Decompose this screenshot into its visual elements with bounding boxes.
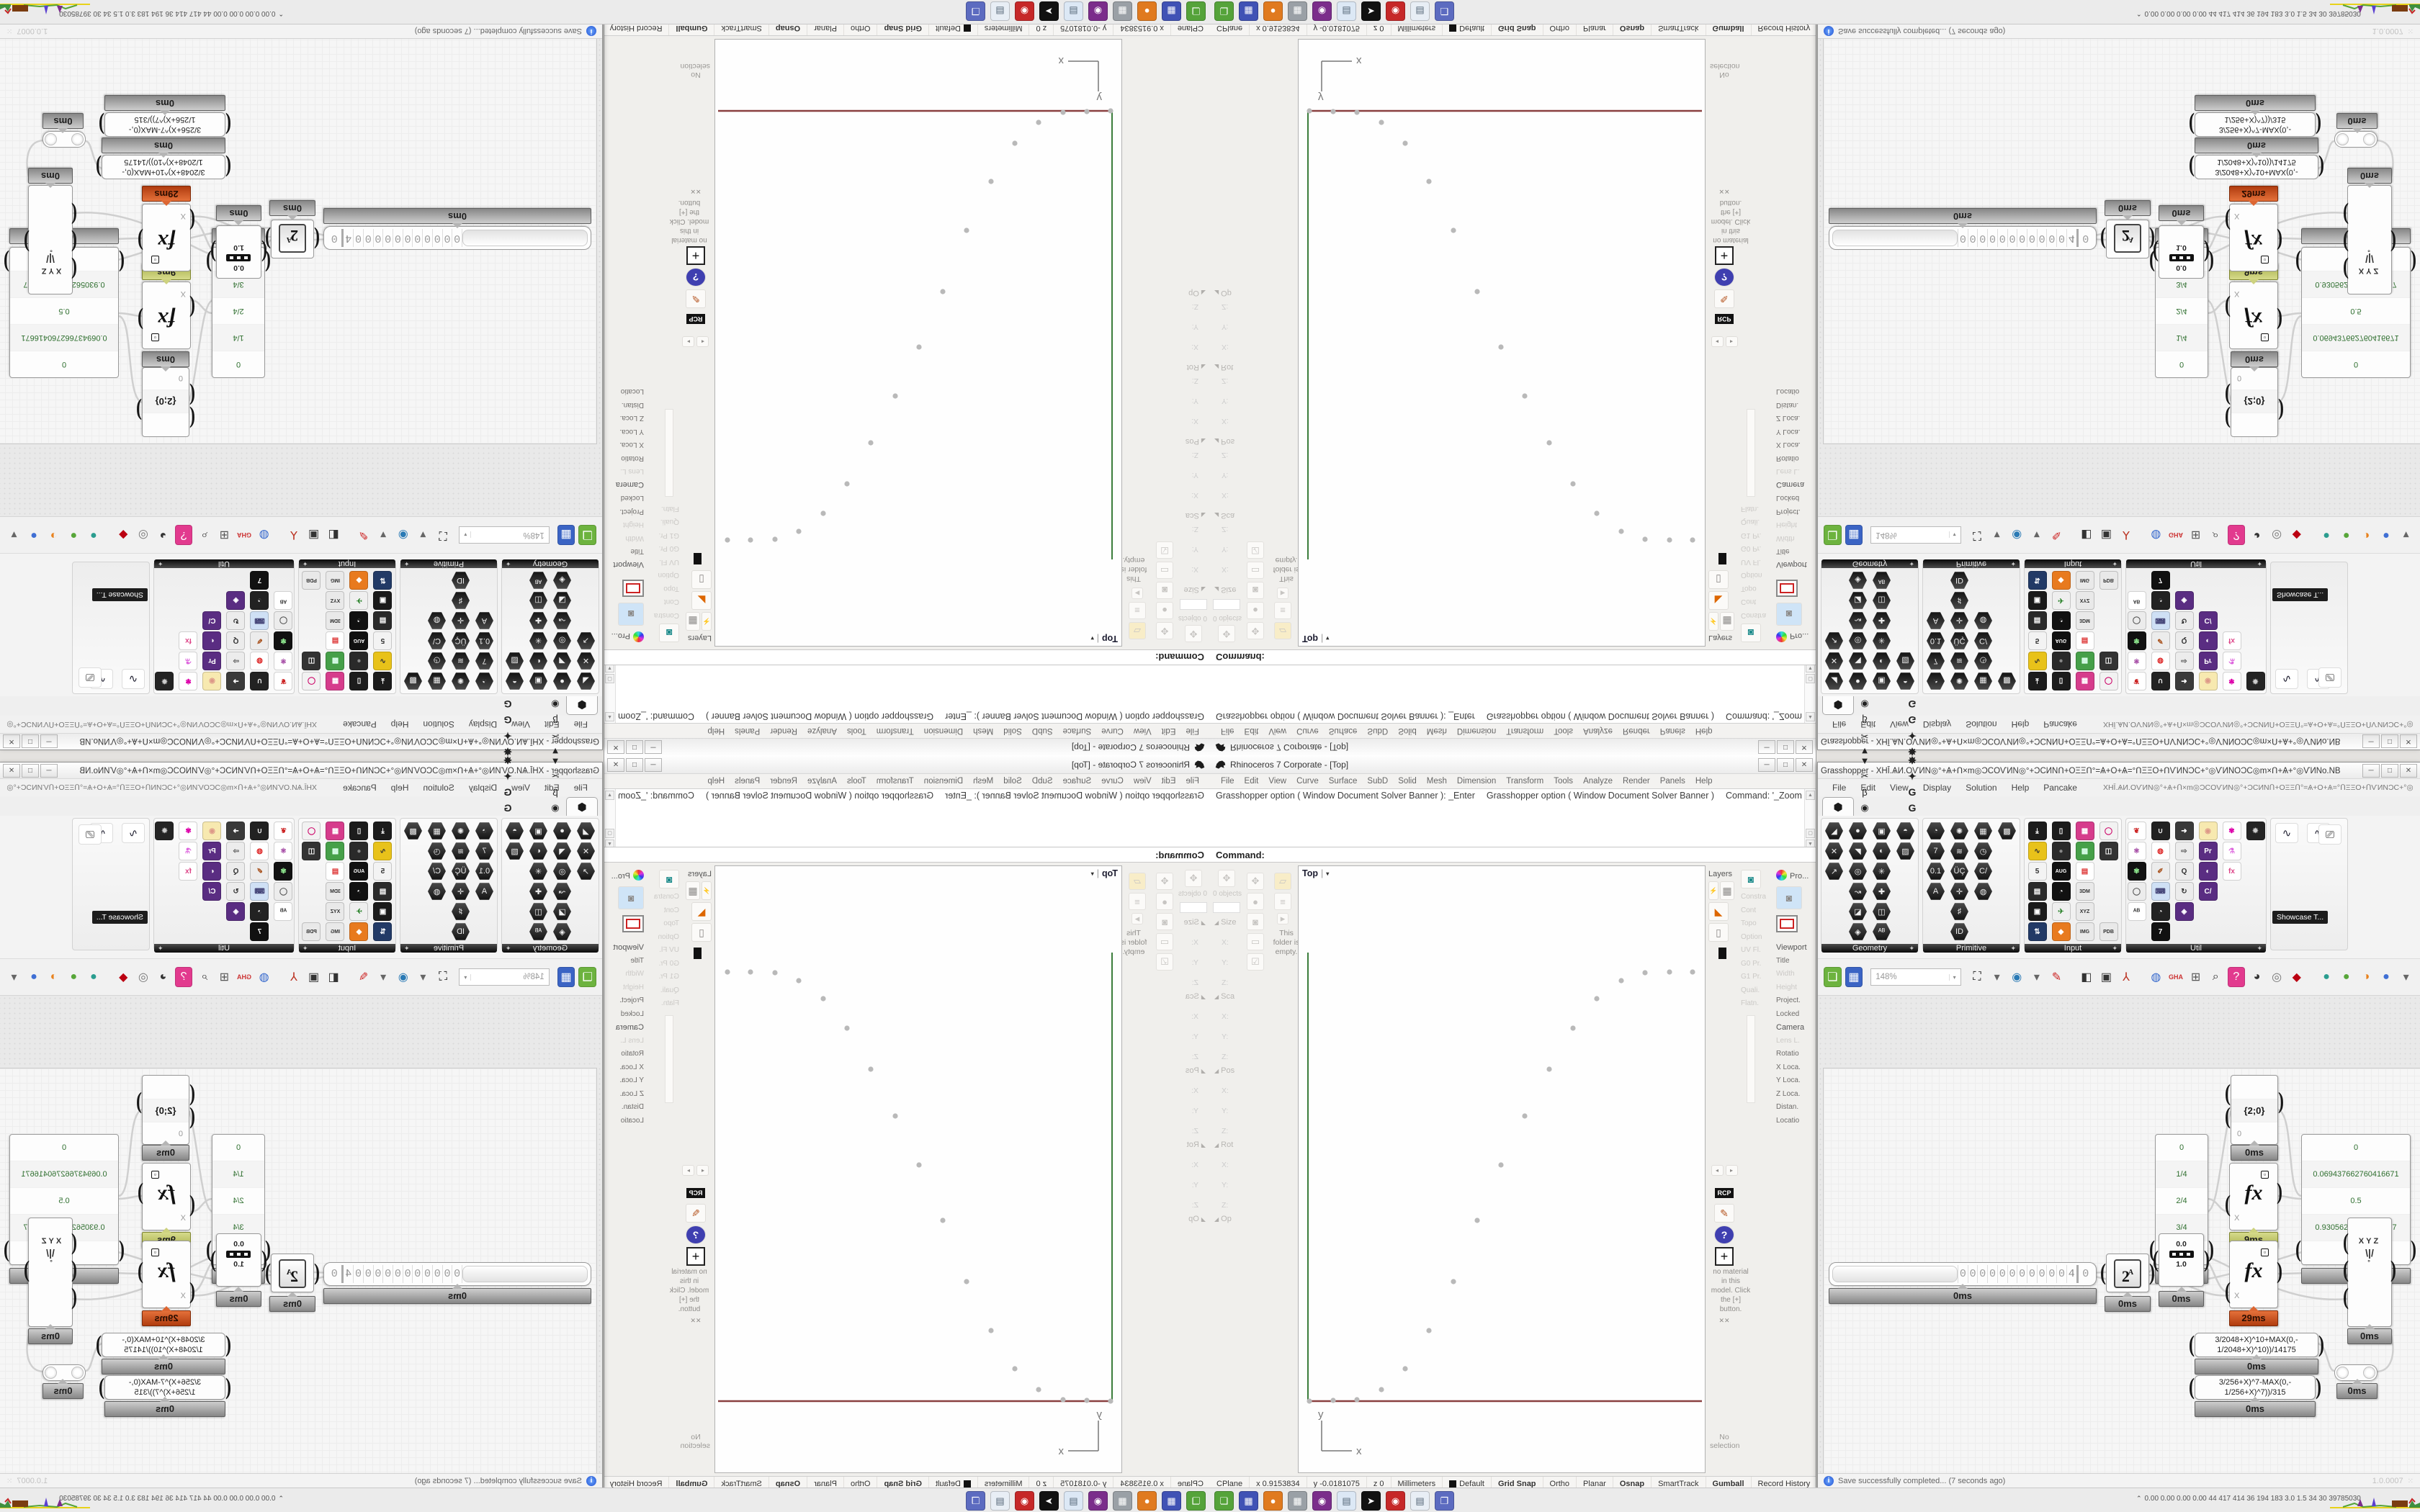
speaker-icon[interactable]: ◧ <box>2078 968 2094 986</box>
gh-category-tab[interactable]: ◉ <box>545 800 565 816</box>
resize-grip-icon[interactable]: ⁙ <box>6 27 12 35</box>
layer-color-swatch[interactable] <box>694 553 702 564</box>
pencil-gear-icon[interactable]: ✎ <box>686 289 706 308</box>
component-icon[interactable]: ✈ <box>2052 902 2071 921</box>
rhino-menu-item[interactable]: Help <box>1690 775 1718 787</box>
slider-grip[interactable] <box>462 1266 588 1282</box>
gh-category-tab[interactable]: β <box>545 712 565 728</box>
component-icon[interactable]: IMG <box>2076 571 2094 590</box>
command-history[interactable]: Grasshopper option ( Window Document Sol… <box>604 788 1210 847</box>
viewport-rect-icon[interactable] <box>1776 580 1798 597</box>
component-icon[interactable]: ▯ <box>350 822 369 840</box>
command-prompt-row[interactable]: Command: <box>604 847 1210 863</box>
component-icon[interactable]: ◈ <box>1849 923 1868 941</box>
projector-screen-icon[interactable]: ⎚ <box>2318 667 2341 688</box>
speaker-icon[interactable]: ◧ <box>2078 526 2094 544</box>
component-icon[interactable]: ᴬᴮ <box>1873 572 1891 590</box>
component-icon[interactable]: ↻ <box>2175 882 2194 901</box>
gh-menu-item[interactable]: File <box>567 781 595 794</box>
sketch-pen-icon[interactable]: ✎ <box>355 968 372 986</box>
component-icon[interactable]: ᴬᴮ <box>529 572 548 590</box>
left-tool-icon[interactable]: ☑ <box>1247 541 1264 559</box>
pencil-gear-icon[interactable]: ✎ <box>1714 1204 1734 1223</box>
expression-text-panel-1[interactable]: 3/2048+X)^10+MAX(0,-1/2048+X)^10))/14175… <box>102 155 225 179</box>
component-icon[interactable]: ▦ <box>1974 822 1993 840</box>
component-icon[interactable]: ⌨ <box>2151 882 2170 901</box>
box-icon[interactable]: ▣ <box>2098 968 2115 986</box>
component-icon[interactable]: ▩ <box>404 672 423 690</box>
prev-icon[interactable]: ◂ <box>1711 1165 1724 1176</box>
taskbar-app-icon[interactable]: ▤ <box>1337 1491 1356 1511</box>
command-scrollbar[interactable]: ▲▢▼ <box>604 789 616 847</box>
taskbar-app-icon[interactable]: ▤ <box>1410 1491 1430 1511</box>
slider-digit[interactable]: 0 <box>443 229 453 247</box>
taskbar-app-icon[interactable]: ◉ <box>1015 1491 1034 1511</box>
component-icon[interactable]: ◯ <box>302 822 321 840</box>
component-icon[interactable]: ♯ <box>452 592 470 610</box>
component-icon[interactable]: ▣ <box>374 591 393 610</box>
boxedit-section-header[interactable]: ◢Size <box>1214 918 1243 927</box>
component-icon[interactable]: ◐ <box>1873 652 1891 670</box>
layer-color-swatch[interactable] <box>1718 948 1726 959</box>
rings-icon[interactable]: ◎ <box>135 968 152 986</box>
component-icon[interactable]: ◓ <box>1896 822 1915 840</box>
component-icon[interactable]: ✳ <box>1873 863 1891 881</box>
tab-params[interactable]: ⬢ <box>566 696 598 715</box>
command-prompt-row[interactable]: Command: <box>1210 649 1816 665</box>
component-icon[interactable]: ◍ <box>2151 652 2170 670</box>
boxedit-input[interactable] <box>1180 599 1207 610</box>
component-icon[interactable]: ≋ <box>452 842 470 860</box>
component-icon[interactable]: ✾ <box>179 822 198 840</box>
component-icon[interactable]: ↝ <box>1849 612 1868 630</box>
taskbar-app-icon[interactable]: ❐ <box>1435 1491 1454 1511</box>
rhino-menu-item[interactable]: SubD <box>1027 725 1058 737</box>
component-icon[interactable]: ✛ <box>1950 612 1969 630</box>
taskbar-app-icon[interactable]: ● <box>1137 1 1157 21</box>
gumball-icon[interactable]: ✥ <box>1218 870 1235 887</box>
next-icon[interactable]: ▸ <box>1726 1165 1738 1176</box>
rhino-menu-item[interactable]: Edit <box>1240 725 1264 737</box>
component-icon[interactable]: ◍ <box>251 842 269 860</box>
component-icon[interactable]: ✛ <box>452 883 470 901</box>
rhino-menu-item[interactable]: Solid <box>1393 775 1422 787</box>
remap-component[interactable]: 0.0 1.0 () <box>2159 1233 2204 1287</box>
component-icon[interactable]: ▨ <box>506 652 524 670</box>
gh-category-tab[interactable]: β <box>1855 784 1875 800</box>
taskbar-app-icon[interactable]: ❐ <box>1435 1 1454 21</box>
speaker-icon[interactable]: ◧ <box>326 526 342 544</box>
command-history[interactable]: Grasshopper option ( Window Document Sol… <box>1210 788 1816 847</box>
cookie-icon[interactable]: ◕ <box>2249 526 2265 544</box>
gumball-icon[interactable]: ✥ <box>1185 625 1202 642</box>
component-icon[interactable]: ◎ <box>1849 632 1868 650</box>
component-icon[interactable]: Q <box>2175 862 2194 881</box>
boxedit-section-header[interactable]: ◢Sca <box>1214 992 1243 1001</box>
ribbon-group-label[interactable]: Geometry✦ <box>502 559 599 568</box>
component-icon[interactable]: PDB <box>2099 922 2118 941</box>
component-icon[interactable]: ▯ <box>2052 672 2071 690</box>
component-icon[interactable]: ◯ <box>2128 611 2146 630</box>
maximize-icon[interactable]: □ <box>22 764 39 778</box>
component-icon[interactable]: ✈ <box>2052 591 2071 610</box>
layer-state-icon[interactable]: ⚡ <box>702 612 712 631</box>
component-icon[interactable]: C/ <box>428 863 447 881</box>
gha-icon[interactable]: GHA <box>2168 526 2184 544</box>
component-icon[interactable]: 7 <box>1927 842 1945 860</box>
teal-ball-icon[interactable]: ● <box>86 526 102 544</box>
component-icon[interactable]: ✐ <box>251 631 269 650</box>
rhino-menu-item[interactable]: Edit <box>1157 725 1181 737</box>
component-icon[interactable]: PDB <box>2099 571 2118 590</box>
component-icon[interactable]: ◎ <box>553 632 572 650</box>
slider-digit[interactable]: 0 <box>1968 229 1978 247</box>
component-icon[interactable]: ● <box>2052 652 2071 670</box>
component-icon[interactable]: ↻ <box>2175 611 2194 630</box>
component-icon[interactable]: ◍ <box>2151 842 2170 860</box>
component-icon[interactable]: ↗ <box>1825 863 1844 881</box>
maximize-icon[interactable]: □ <box>626 741 643 755</box>
rhino-menu-item[interactable]: Tools <box>842 775 871 787</box>
component-icon[interactable]: 0.1 <box>1927 632 1945 650</box>
component-icon[interactable]: ▩ <box>326 652 345 670</box>
component-icon[interactable]: ➜ <box>2175 822 2194 840</box>
paper-icon[interactable]: ▯ <box>691 923 712 942</box>
taskbar-app-icon[interactable]: ▤ <box>1064 1491 1083 1511</box>
next-icon[interactable]: ▸ <box>1726 336 1738 347</box>
gh-menu-item[interactable]: Help <box>2004 718 2037 731</box>
folder-icon[interactable]: ▱ <box>1274 873 1291 890</box>
expression-text-panel-2[interactable]: 3/256+X)^7-MAX(0,-1/256+X)^7))/315 () <box>2195 1375 2316 1400</box>
component-icon[interactable]: ∪ <box>251 822 269 840</box>
component-icon[interactable]: ◔ <box>251 591 269 610</box>
component-icon[interactable]: 5 <box>374 862 393 881</box>
folder-icon[interactable]: ▱ <box>1129 873 1146 890</box>
rcp-icon[interactable]: RCP <box>1715 314 1733 324</box>
component-icon[interactable]: ⌨ <box>251 611 269 630</box>
component-icon[interactable]: C/ <box>203 882 222 901</box>
save-icon[interactable]: ▦ <box>1845 967 1863 987</box>
boxedit-section-header[interactable]: ◢Size <box>1177 585 1206 594</box>
component-icon[interactable]: Pr <box>2199 652 2218 670</box>
vertical-slider[interactable] <box>665 1015 673 1103</box>
camera-gear-icon[interactable]: ◙ <box>1741 624 1761 642</box>
component-icon[interactable]: ◔ <box>2052 611 2071 630</box>
component-icon[interactable]: ✚ <box>1873 883 1891 901</box>
close-icon[interactable]: ✕ <box>607 741 624 755</box>
component-icon[interactable]: ✐ <box>2151 631 2170 650</box>
component-icon[interactable]: fx <box>179 631 198 650</box>
prev-icon[interactable]: ◂ <box>697 336 709 347</box>
component-icon[interactable]: 3DM <box>2076 611 2094 630</box>
number-slider[interactable]: 0000000000040 <box>323 226 591 250</box>
component-icon[interactable]: ◈ <box>227 902 246 921</box>
taskbar-app-icon[interactable]: ◉ <box>1312 1491 1332 1511</box>
layer-state-icon[interactable]: ⚡ <box>1708 612 1718 631</box>
rhino-menu-item[interactable]: Panels <box>1655 725 1690 737</box>
gh-plugin-tab[interactable]: ✸ <box>498 756 518 768</box>
preview-eye-icon[interactable]: ◉ <box>395 968 411 986</box>
component-icon[interactable]: ◈ <box>2175 902 2194 921</box>
boxedit-section-header[interactable]: ◢Pos <box>1177 1066 1206 1075</box>
vertical-slider[interactable] <box>665 410 673 498</box>
teal-ball-icon[interactable]: ● <box>2318 968 2335 986</box>
magnifier-icon[interactable]: ⌕ <box>2208 968 2224 986</box>
boxedit-section-header[interactable]: ◢Rot <box>1177 363 1206 372</box>
expression-text-panel-1[interactable]: 3/2048+X)^10+MAX(0,-1/2048+X)^10))/14175… <box>2195 155 2318 179</box>
viewport-label[interactable]: Top|▾ <box>1091 868 1118 878</box>
component-icon[interactable]: ◉ <box>203 672 222 690</box>
component-icon[interactable]: ✛ <box>452 612 470 630</box>
gem-icon[interactable]: ◆ <box>115 968 132 986</box>
component-icon[interactable]: C/ <box>1974 632 1993 650</box>
rhino-menu-item[interactable]: Transform <box>871 775 919 787</box>
vertical-slider[interactable] <box>1747 410 1755 498</box>
component-icon[interactable]: ◢ <box>1825 672 1844 690</box>
taskbar-app-icon[interactable]: ▦ <box>1288 1491 1307 1511</box>
component-icon[interactable]: ∪ <box>2151 672 2170 690</box>
sketch-pen-icon[interactable]: ✎ <box>2048 526 2065 544</box>
component-icon[interactable]: ▤ <box>326 631 345 650</box>
command-prompt-row[interactable]: Command: <box>604 649 1210 665</box>
hamburger-menu-icon[interactable]: ≡ <box>1274 893 1291 910</box>
component-icon[interactable]: 0.1 <box>1927 863 1945 881</box>
component-icon[interactable]: ✳ <box>529 632 548 650</box>
component-icon[interactable]: ⇅ <box>2028 922 2047 941</box>
rhino-menu-item[interactable]: Analyze <box>802 725 842 737</box>
taskbar-app-icon[interactable]: ▦ <box>1239 1 1258 21</box>
component-icon[interactable]: ✈ <box>350 902 369 921</box>
checker-icon[interactable]: ▦ <box>1720 612 1734 631</box>
component-icon[interactable]: ◔ <box>2052 882 2071 901</box>
window-icon[interactable]: ⊞ <box>216 526 233 544</box>
gha-icon[interactable]: GHA <box>2168 968 2184 986</box>
sketch-pen-icon[interactable]: ✎ <box>2048 968 2065 986</box>
component-icon[interactable]: Q <box>2175 631 2194 650</box>
number-slider[interactable]: 0000000000040 <box>323 1262 591 1286</box>
component-icon[interactable]: ◐ <box>1873 842 1891 860</box>
component-icon[interactable]: 7 <box>2151 571 2170 590</box>
component-icon[interactable]: ⤓ <box>2028 672 2047 690</box>
rcp-icon[interactable]: RCP <box>687 314 705 324</box>
rhino-menu-item[interactable]: Render <box>765 725 802 737</box>
component-icon[interactable]: ◷ <box>1974 842 1993 860</box>
component-icon[interactable]: AUG <box>350 631 369 650</box>
component-icon[interactable]: ◐ <box>529 652 548 670</box>
component-icon[interactable]: ◉ <box>2199 672 2218 690</box>
component-icon[interactable]: ◫ <box>302 652 321 670</box>
left-tool-icon[interactable]: ▭ <box>1156 562 1173 579</box>
viewport-top[interactable]: Top|▾ yx <box>714 39 1122 647</box>
rhino-menu-item[interactable]: View <box>1263 775 1291 787</box>
rhino-menu-item[interactable]: SubD <box>1362 725 1393 737</box>
sketch-pen-icon[interactable]: ✎ <box>355 526 372 544</box>
box-icon[interactable]: ▣ <box>2098 526 2115 544</box>
component-icon[interactable]: A <box>1927 883 1945 901</box>
component-icon[interactable]: ◢ <box>1825 822 1844 840</box>
boxedit-section-header[interactable]: ◢Op <box>1214 289 1243 297</box>
speaker-icon[interactable]: ◧ <box>326 968 342 986</box>
viewport-label[interactable]: Top|▾ <box>1302 868 1329 878</box>
slider-digit[interactable]: 0 <box>413 1265 423 1283</box>
preview-eye-icon[interactable]: ◉ <box>2009 526 2025 544</box>
vertical-slider[interactable] <box>1747 1015 1755 1103</box>
taskbar-app-icon[interactable]: ❐ <box>966 1491 985 1511</box>
rhino-menu-item[interactable]: File <box>1216 725 1240 737</box>
component-icon[interactable]: ▦ <box>428 822 447 840</box>
gh-category-tab[interactable]: ✂ <box>1855 768 1875 784</box>
minimize-icon[interactable]: ─ <box>40 764 58 778</box>
projector-screen-icon[interactable]: ⎚ <box>79 824 102 845</box>
component-icon[interactable]: ▤ <box>2076 631 2094 650</box>
maximize-icon[interactable]: □ <box>1777 741 1794 755</box>
viewport-rect-icon[interactable] <box>1776 915 1798 932</box>
gem-icon[interactable]: ◆ <box>2288 968 2305 986</box>
boxedit-section-header[interactable]: ◢Size <box>1214 585 1243 594</box>
component-icon[interactable]: ✐ <box>251 862 269 881</box>
gumball-icon[interactable]: ✥ <box>1185 870 1202 887</box>
hamburger-menu-icon[interactable]: ≡ <box>1129 602 1146 619</box>
checker-icon[interactable]: ▦ <box>1720 881 1734 900</box>
taskbar-app-icon[interactable]: ● <box>1263 1491 1283 1511</box>
component-icon[interactable]: ▨ <box>1896 842 1915 860</box>
window-icon[interactable]: ⊞ <box>2187 968 2204 986</box>
slider-grip[interactable] <box>1832 1266 1958 1282</box>
window-icon[interactable]: ⊞ <box>2187 526 2204 544</box>
rhino-menu-item[interactable]: Curve <box>1096 725 1129 737</box>
component-icon[interactable]: C/ <box>2199 882 2218 901</box>
maximize-icon[interactable]: □ <box>22 735 39 749</box>
component-icon[interactable]: ⇅ <box>374 922 393 941</box>
left-tool-icon[interactable]: ● <box>1247 893 1264 910</box>
ball-dropdown-icon[interactable]: ▾ <box>6 526 22 544</box>
left-tool-icon[interactable]: ● <box>1156 602 1173 619</box>
new-document-icon[interactable]: ❏ <box>578 967 596 987</box>
component-icon[interactable]: 5 <box>374 631 393 650</box>
component-icon[interactable]: ∿ <box>374 652 393 670</box>
component-icon[interactable]: ÜÇ <box>452 863 470 881</box>
prev-icon[interactable]: ◂ <box>697 1165 709 1176</box>
component-icon[interactable]: ◯ <box>2099 672 2118 690</box>
rhino-titlebar[interactable]: Rhinoceros 7 Corporate - [Top] ─ □ ✕ <box>1210 756 1816 774</box>
gh-menu-item[interactable]: Help <box>384 781 416 794</box>
component-icon[interactable]: ◯ <box>2128 882 2146 901</box>
component-icon[interactable]: ◔ <box>1927 672 1945 690</box>
close-icon[interactable]: ✕ <box>607 758 624 772</box>
rhino-menu-item[interactable]: Help <box>702 775 730 787</box>
viewport-top[interactable]: Top|▾ yx <box>1298 39 1706 647</box>
left-tool-icon[interactable]: ☑ <box>1156 541 1173 559</box>
rhino-menu-item[interactable]: Solid <box>1393 725 1422 737</box>
rhino-menu-item[interactable]: Transform <box>871 725 919 737</box>
component-icon[interactable]: 5 <box>2028 862 2047 881</box>
checker-icon[interactable]: ▦ <box>686 881 700 900</box>
component-icon[interactable]: ◯ <box>274 882 293 901</box>
component-icon[interactable]: ✕ <box>577 842 596 860</box>
component-icon[interactable]: ▦ <box>428 672 447 690</box>
taskbar-app-icon[interactable]: ◉ <box>1088 1491 1108 1511</box>
taskbar-app-icon[interactable]: ❏ <box>1186 1 1206 21</box>
component-icon[interactable]: ✾ <box>2223 672 2241 690</box>
showcase-icon[interactable]: ∿ <box>2275 669 2298 689</box>
slider-digit[interactable]: 0 <box>2027 229 2037 247</box>
component-icon[interactable]: ✺ <box>452 672 470 690</box>
component-icon[interactable]: ▩ <box>326 842 345 860</box>
component-icon[interactable]: ᴬᴮ <box>274 591 293 610</box>
help-icon[interactable]: ? <box>686 268 706 287</box>
slider-grip[interactable] <box>462 230 588 246</box>
tripod-icon[interactable]: ⅄ <box>286 526 302 544</box>
component-icon[interactable]: ▦ <box>1974 672 1993 690</box>
gh-canvas[interactable]: {2;0}0(() 0ms 01/42/43/44/4() 0ms 00.069… <box>0 996 602 1473</box>
slider-digit[interactable]: 0 <box>2027 1265 2037 1283</box>
component-icon[interactable]: 3DM <box>326 611 345 630</box>
add-material-button[interactable]: + <box>686 1247 705 1266</box>
eye-dropdown-icon[interactable]: ▾ <box>375 968 392 986</box>
pencil-gear-icon[interactable]: ✎ <box>686 1204 706 1223</box>
taskbar-app-icon[interactable]: ❏ <box>1214 1 1234 21</box>
stats-chevron-icon[interactable]: ⌃ <box>278 1496 284 1501</box>
taskbar-app-icon[interactable]: ▤ <box>1410 1 1430 21</box>
camera-icon[interactable]: ◙ <box>1776 886 1802 909</box>
rhino-menu-item[interactable]: Panels <box>1655 775 1690 787</box>
component-icon[interactable]: ◎ <box>1849 863 1868 881</box>
boxedit-section-header[interactable]: ◢Op <box>1214 1215 1243 1223</box>
gh-menu-item[interactable]: File <box>567 718 595 731</box>
component-icon[interactable]: 7 <box>475 652 494 670</box>
component-icon[interactable]: ↗ <box>1825 632 1844 650</box>
component-icon[interactable]: ↝ <box>1849 883 1868 901</box>
slider-value[interactable]: 4 <box>2066 1265 2076 1283</box>
layer-arrow-icon[interactable]: ◣ <box>691 591 712 610</box>
taskbar-app-icon[interactable]: ▤ <box>990 1491 1010 1511</box>
box-icon[interactable]: ▣ <box>305 526 322 544</box>
slider-digit[interactable]: 0 <box>2046 1265 2056 1283</box>
folder-icon[interactable]: ▱ <box>1274 622 1291 639</box>
component-icon[interactable]: ▨ <box>1896 652 1915 670</box>
component-icon[interactable]: ▣ <box>2028 902 2047 921</box>
component-icon[interactable]: ⚗ <box>179 842 198 860</box>
component-icon[interactable]: ◥ <box>1849 652 1868 670</box>
help-box-icon[interactable]: ? <box>175 525 193 545</box>
component-icon[interactable]: ✕ <box>577 652 596 670</box>
component-icon[interactable]: ≋ <box>1950 842 1969 860</box>
expression-component-top[interactable]: fx ▫ X () <box>2229 1163 2278 1230</box>
resize-grip-icon[interactable]: ⁙ <box>6 1477 12 1485</box>
taskbar-app-icon[interactable]: ❏ <box>1214 1491 1234 1511</box>
taskbar-app-icon[interactable]: ▤ <box>990 1 1010 21</box>
component-icon[interactable]: ◔ <box>475 672 494 690</box>
component-icon[interactable]: ◔ <box>350 882 369 901</box>
ribbon-group-label[interactable]: Input✦ <box>299 944 395 953</box>
rhino-menu-item[interactable]: Dimension <box>1452 775 1501 787</box>
component-icon[interactable]: ▣ <box>529 672 548 690</box>
component-icon[interactable]: ◫ <box>529 592 548 610</box>
ribbon-group-label[interactable]: Primitive✦ <box>400 559 497 568</box>
component-icon[interactable]: ✹ <box>2246 672 2265 690</box>
stats-chevron-icon[interactable]: ⌃ <box>2136 1496 2142 1501</box>
rhino-menu-item[interactable]: File <box>1216 775 1240 787</box>
boxedit-input[interactable] <box>1180 902 1207 913</box>
showcase-icon[interactable]: ∿ <box>2275 823 2298 843</box>
rhino-menu-item[interactable]: Dimension <box>919 725 968 737</box>
taskbar-app-icon[interactable]: ▦ <box>1162 1 1181 21</box>
component-icon[interactable]: ◪ <box>553 903 572 921</box>
component-icon[interactable]: ✕ <box>1825 842 1844 860</box>
component-icon[interactable]: PDB <box>302 922 321 941</box>
gh-menu-item[interactable]: Pancake <box>2036 781 2084 794</box>
taskbar-app-icon[interactable]: ◉ <box>1088 1 1108 21</box>
